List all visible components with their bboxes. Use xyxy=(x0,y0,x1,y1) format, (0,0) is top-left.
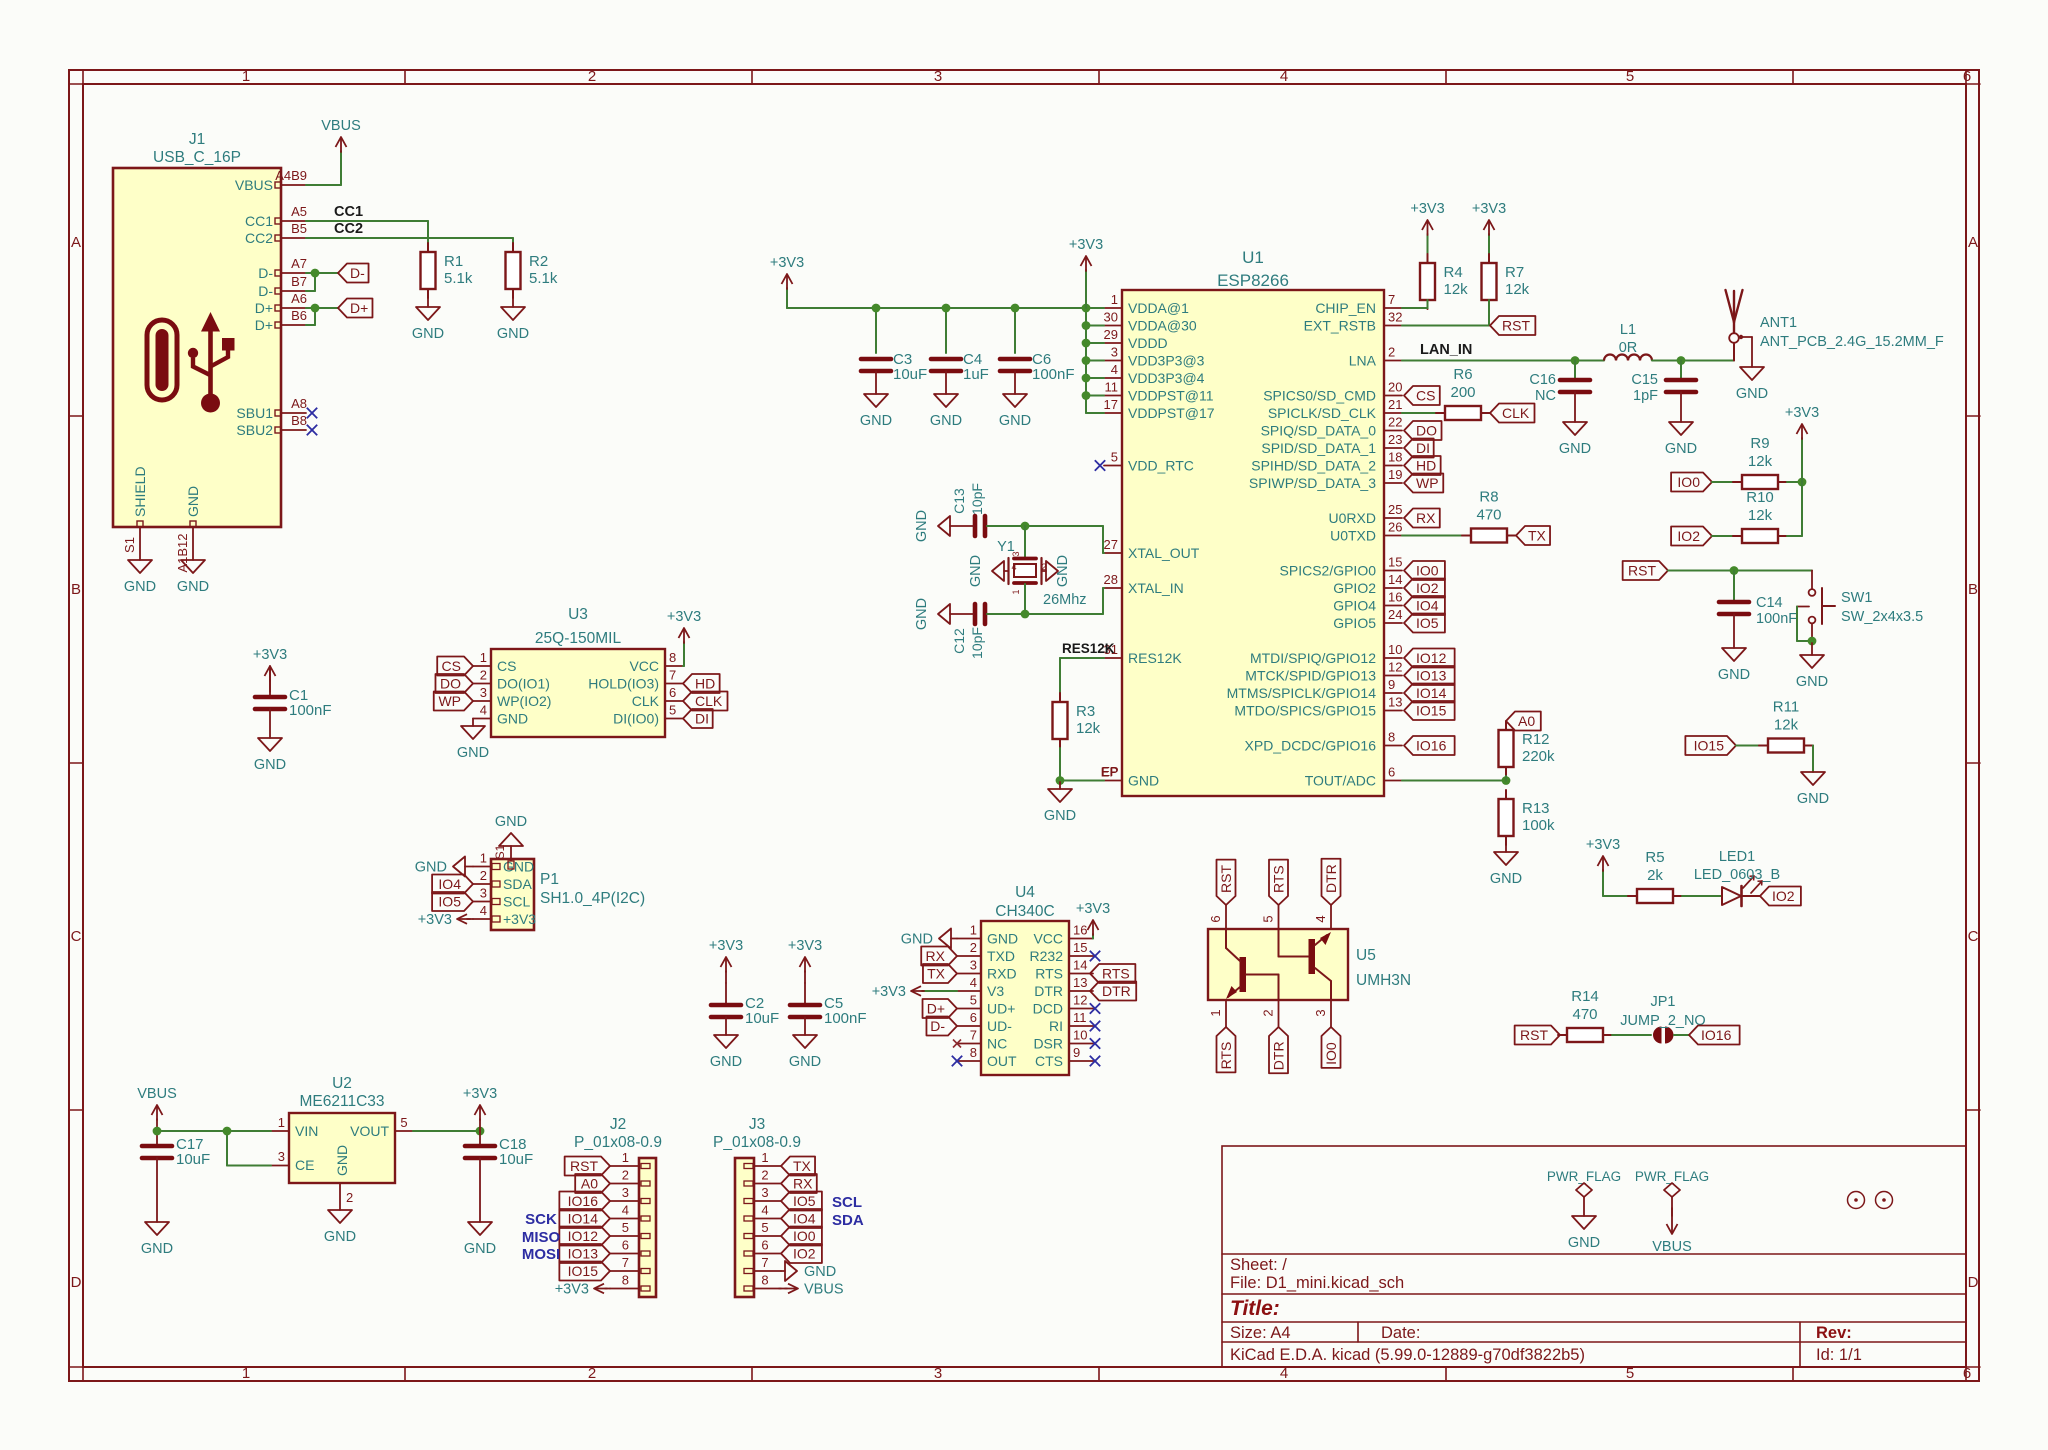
svg-text:Date:: Date: xyxy=(1381,1324,1420,1342)
svg-text:IO13: IO13 xyxy=(568,1246,599,1262)
svg-text:26: 26 xyxy=(1388,520,1402,535)
svg-text:7: 7 xyxy=(970,1028,977,1043)
svg-text:J1: J1 xyxy=(189,131,205,148)
svg-text:TX: TX xyxy=(793,1158,812,1174)
svg-text:NC: NC xyxy=(1535,388,1556,404)
svg-text:VCC: VCC xyxy=(1033,931,1063,947)
svg-text:KiCad E.D.A. kicad (5.99.0-12: KiCad E.D.A. kicad (5.99.0-12889-g70df38… xyxy=(1230,1346,1585,1364)
svg-text:A: A xyxy=(1968,234,1978,251)
svg-text:VOUT: VOUT xyxy=(350,1123,389,1139)
svg-text:VDD3P3@4: VDD3P3@4 xyxy=(1128,370,1205,386)
svg-text:5: 5 xyxy=(669,703,676,718)
svg-text:Title:: Title: xyxy=(1230,1297,1280,1320)
svg-text:1: 1 xyxy=(480,650,487,665)
svg-text:P_01x08-0.9: P_01x08-0.9 xyxy=(574,1134,662,1151)
svg-text:U0TXD: U0TXD xyxy=(1330,528,1376,544)
svg-text:D-: D- xyxy=(930,1018,945,1034)
svg-text:SW_2x4x3.5: SW_2x4x3.5 xyxy=(1841,609,1923,625)
svg-text:15: 15 xyxy=(1073,940,1087,955)
svg-text:12k: 12k xyxy=(1774,717,1799,734)
svg-text:3: 3 xyxy=(480,685,487,700)
svg-text:A: A xyxy=(71,234,81,251)
svg-text:IO2: IO2 xyxy=(1772,888,1795,904)
svg-text:B8: B8 xyxy=(291,413,307,428)
svg-text:CS: CS xyxy=(1416,388,1435,404)
svg-text:CS: CS xyxy=(497,658,516,674)
svg-text:SDA: SDA xyxy=(503,876,532,892)
svg-text:ESP8266: ESP8266 xyxy=(1217,271,1289,290)
svg-text:TX: TX xyxy=(927,966,946,982)
svg-text:J2: J2 xyxy=(610,1116,626,1133)
svg-text:U5: U5 xyxy=(1356,947,1376,964)
svg-text:C: C xyxy=(1968,928,1979,945)
svg-text:13: 13 xyxy=(1388,695,1402,710)
svg-text:16: 16 xyxy=(1073,923,1087,938)
svg-text:5: 5 xyxy=(400,1115,407,1130)
svg-text:SBU1: SBU1 xyxy=(236,405,273,421)
svg-text:GND: GND xyxy=(254,757,286,773)
svg-text:TOUT/ADC: TOUT/ADC xyxy=(1305,773,1376,789)
svg-text:SH1.0_4P(I2C): SH1.0_4P(I2C) xyxy=(540,890,645,907)
svg-text:GND: GND xyxy=(914,598,930,630)
svg-text:MTMS/SPICLK/GPIO14: MTMS/SPICLK/GPIO14 xyxy=(1227,685,1377,701)
svg-text:DO: DO xyxy=(440,676,461,692)
svg-text:GND: GND xyxy=(185,486,201,517)
svg-text:4: 4 xyxy=(1280,68,1288,85)
svg-text:12k: 12k xyxy=(1748,507,1773,524)
svg-text:4: 4 xyxy=(1011,562,1016,572)
svg-text:1: 1 xyxy=(242,68,250,85)
svg-text:MOSI: MOSI xyxy=(522,1246,560,1263)
svg-text:IO16: IO16 xyxy=(568,1193,599,1209)
svg-text:CLK: CLK xyxy=(632,693,660,709)
svg-text:GND: GND xyxy=(860,413,892,429)
svg-text:2: 2 xyxy=(1261,1009,1276,1016)
svg-text:6: 6 xyxy=(761,1238,768,1253)
svg-text:12k: 12k xyxy=(1076,720,1101,737)
svg-text:1pF: 1pF xyxy=(1633,388,1658,404)
svg-text:IO4: IO4 xyxy=(793,1211,816,1227)
svg-text:30: 30 xyxy=(1104,310,1118,325)
svg-text:VBUS: VBUS xyxy=(235,177,273,193)
svg-text:12k: 12k xyxy=(1748,453,1773,470)
svg-text:GPIO4: GPIO4 xyxy=(1333,598,1376,614)
svg-text:IO16: IO16 xyxy=(1701,1027,1732,1043)
svg-text:LED1: LED1 xyxy=(1719,849,1755,865)
svg-text:2: 2 xyxy=(588,68,596,85)
svg-text:EP: EP xyxy=(1101,764,1118,779)
svg-text:R2: R2 xyxy=(529,253,548,270)
svg-text:GND: GND xyxy=(1718,667,1750,683)
svg-text:12: 12 xyxy=(1388,660,1402,675)
svg-text:DO: DO xyxy=(1416,423,1437,439)
svg-text:17: 17 xyxy=(1104,397,1118,412)
svg-text:1: 1 xyxy=(622,1150,629,1165)
svg-text:3: 3 xyxy=(934,68,942,85)
svg-text:SCL: SCL xyxy=(832,1194,862,1211)
svg-text:U2: U2 xyxy=(332,1075,352,1092)
svg-text:GND: GND xyxy=(1736,386,1768,402)
svg-text:3: 3 xyxy=(970,958,977,973)
svg-text:USB_C_16P: USB_C_16P xyxy=(153,149,241,166)
svg-text:4: 4 xyxy=(480,703,487,718)
svg-text:VBUS: VBUS xyxy=(804,1282,844,1298)
svg-text:14: 14 xyxy=(1388,572,1402,587)
svg-text:RXD: RXD xyxy=(987,966,1017,982)
svg-text:R13: R13 xyxy=(1522,800,1550,817)
svg-text:8: 8 xyxy=(970,1045,977,1060)
svg-text:SPICS2/GPIO0: SPICS2/GPIO0 xyxy=(1280,563,1377,579)
svg-text:UD-: UD- xyxy=(987,1018,1012,1034)
svg-text:HD: HD xyxy=(1416,458,1436,474)
svg-text:NC: NC xyxy=(987,1036,1007,1052)
svg-text:3: 3 xyxy=(1011,551,1021,556)
svg-text:+3V3: +3V3 xyxy=(1410,201,1444,217)
svg-text:C13: C13 xyxy=(951,488,967,514)
svg-text:6: 6 xyxy=(1208,915,1223,922)
svg-text:5: 5 xyxy=(1111,450,1118,465)
svg-text:XTAL_IN: XTAL_IN xyxy=(1128,580,1184,596)
svg-text:R3: R3 xyxy=(1076,703,1095,720)
svg-text:VDDD: VDDD xyxy=(1128,335,1168,351)
svg-text:DTR: DTR xyxy=(1271,1041,1287,1070)
svg-text:CS: CS xyxy=(442,658,461,674)
svg-text:5: 5 xyxy=(970,993,977,1008)
svg-text:MTCK/SPID/GPIO13: MTCK/SPID/GPIO13 xyxy=(1245,668,1376,684)
svg-text:ME6211C33: ME6211C33 xyxy=(299,1093,384,1110)
svg-text:10uF: 10uF xyxy=(893,366,927,383)
svg-text:S1: S1 xyxy=(122,537,137,553)
svg-text:7: 7 xyxy=(761,1255,768,1270)
svg-text:Size: A4: Size: A4 xyxy=(1230,1324,1291,1342)
svg-text:10uF: 10uF xyxy=(499,1151,533,1168)
svg-text:RST: RST xyxy=(1628,563,1656,579)
svg-text:CH340C: CH340C xyxy=(995,903,1054,920)
svg-text:GND: GND xyxy=(1055,555,1071,587)
svg-text:200: 200 xyxy=(1450,384,1475,401)
svg-text:100nF: 100nF xyxy=(289,702,332,719)
svg-text:13: 13 xyxy=(1073,975,1087,990)
svg-text:7: 7 xyxy=(622,1255,629,1270)
svg-text:GND: GND xyxy=(1128,773,1159,789)
svg-text:U4: U4 xyxy=(1015,884,1035,901)
svg-text:VBUS: VBUS xyxy=(1652,1239,1692,1255)
svg-text:R11: R11 xyxy=(1773,699,1799,716)
svg-text:+3V3: +3V3 xyxy=(1472,201,1506,217)
svg-text:3: 3 xyxy=(761,1185,768,1200)
svg-text:R5: R5 xyxy=(1645,849,1664,866)
svg-text:A6: A6 xyxy=(291,291,307,306)
svg-text:2: 2 xyxy=(1388,345,1395,360)
svg-text:CC2: CC2 xyxy=(334,221,363,237)
svg-text:10: 10 xyxy=(1388,642,1402,657)
svg-text:IO5: IO5 xyxy=(1416,615,1439,631)
svg-text:3: 3 xyxy=(1111,345,1118,360)
svg-text:V3: V3 xyxy=(987,983,1004,999)
svg-text:Sheet: /: Sheet: / xyxy=(1230,1256,1287,1274)
svg-text:RTS: RTS xyxy=(1035,966,1063,982)
svg-text:+3V3: +3V3 xyxy=(667,609,701,625)
svg-text:R6: R6 xyxy=(1453,366,1472,383)
svg-text:6: 6 xyxy=(1963,68,1971,85)
svg-text:MTDO/SPICS/GPIO15: MTDO/SPICS/GPIO15 xyxy=(1234,703,1376,719)
svg-text:Id: 1/1: Id: 1/1 xyxy=(1816,1346,1862,1364)
svg-text:4: 4 xyxy=(970,975,977,990)
svg-text:D: D xyxy=(71,1274,82,1291)
svg-text:XTAL_OUT: XTAL_OUT xyxy=(1128,545,1200,561)
svg-text:Rev:: Rev: xyxy=(1816,1324,1852,1342)
svg-text:6: 6 xyxy=(970,1010,977,1025)
svg-text:11: 11 xyxy=(1073,1010,1087,1025)
svg-text:IO12: IO12 xyxy=(568,1228,599,1244)
svg-text:A0: A0 xyxy=(581,1176,598,1192)
svg-text:GND: GND xyxy=(124,579,156,595)
svg-text:1: 1 xyxy=(970,923,977,938)
svg-text:SPIHD/SD_DATA_2: SPIHD/SD_DATA_2 xyxy=(1251,458,1376,474)
svg-text:B6: B6 xyxy=(291,308,307,323)
svg-text:25: 25 xyxy=(1388,502,1402,517)
svg-text:GND: GND xyxy=(457,745,489,761)
svg-text:GND: GND xyxy=(804,1264,836,1280)
svg-text:3: 3 xyxy=(480,886,487,901)
svg-text:RST: RST xyxy=(1218,865,1234,893)
svg-text:DCD: DCD xyxy=(1033,1001,1063,1017)
svg-text:EXT_RSTB: EXT_RSTB xyxy=(1304,318,1376,334)
svg-text:RES12K: RES12K xyxy=(1062,641,1115,656)
svg-text:SPIWP/SD_DATA_3: SPIWP/SD_DATA_3 xyxy=(1249,475,1376,491)
svg-text:R232: R232 xyxy=(1030,948,1064,964)
svg-text:D-: D- xyxy=(258,283,273,299)
svg-text:VBUS: VBUS xyxy=(137,1086,177,1102)
svg-text:5: 5 xyxy=(622,1220,629,1235)
svg-text:VCC: VCC xyxy=(629,658,659,674)
svg-text:IO5: IO5 xyxy=(793,1193,816,1209)
svg-text:WP: WP xyxy=(438,693,461,709)
svg-text:RX: RX xyxy=(1416,510,1436,526)
svg-text:L1: L1 xyxy=(1620,322,1636,338)
svg-text:TX: TX xyxy=(1528,528,1547,544)
svg-text:GND: GND xyxy=(1665,441,1697,457)
svg-text:9: 9 xyxy=(1073,1045,1080,1060)
svg-text:IO14: IO14 xyxy=(568,1211,599,1227)
svg-text:D-: D- xyxy=(258,265,273,281)
svg-text:10uF: 10uF xyxy=(176,1151,210,1168)
svg-text:5.1k: 5.1k xyxy=(444,270,473,287)
svg-text:C: C xyxy=(71,928,82,945)
svg-text:GND: GND xyxy=(495,814,527,830)
svg-text:B5: B5 xyxy=(291,221,307,236)
svg-text:5: 5 xyxy=(1261,915,1276,922)
svg-text:0R: 0R xyxy=(1619,340,1638,356)
svg-text:GND: GND xyxy=(415,860,447,876)
svg-text:8: 8 xyxy=(669,650,676,665)
svg-text:+3V3: +3V3 xyxy=(1069,237,1103,253)
svg-text:GND: GND xyxy=(141,1241,173,1257)
svg-text:8: 8 xyxy=(761,1273,768,1288)
svg-text:RST: RST xyxy=(1502,318,1530,334)
svg-text:IO4: IO4 xyxy=(1416,598,1439,614)
svg-text:220k: 220k xyxy=(1522,748,1555,765)
svg-text:RST: RST xyxy=(1520,1027,1548,1043)
svg-text:CLK: CLK xyxy=(695,693,723,709)
svg-text:CC1: CC1 xyxy=(245,213,273,229)
svg-text:1: 1 xyxy=(480,851,487,866)
svg-text:SBU2: SBU2 xyxy=(236,422,273,438)
svg-text:7: 7 xyxy=(669,668,676,683)
svg-text:6: 6 xyxy=(1388,765,1395,780)
svg-text:CHIP_EN: CHIP_EN xyxy=(1315,300,1376,316)
svg-text:5: 5 xyxy=(1626,68,1634,85)
svg-text:16: 16 xyxy=(1388,590,1402,605)
svg-text:D+: D+ xyxy=(350,300,368,316)
svg-text:1: 1 xyxy=(1011,589,1021,594)
svg-text:ANT_PCB_2.4G_15.2MM_F: ANT_PCB_2.4G_15.2MM_F xyxy=(1760,334,1944,350)
svg-text:OUT: OUT xyxy=(987,1053,1017,1069)
svg-text:IO2: IO2 xyxy=(1677,528,1700,544)
svg-text:SPICLK/SD_CLK: SPICLK/SD_CLK xyxy=(1268,405,1377,421)
svg-text:RES12K: RES12K xyxy=(1128,650,1182,666)
svg-text:DTR: DTR xyxy=(1323,864,1339,893)
svg-text:2: 2 xyxy=(970,940,977,955)
svg-text:ANT1: ANT1 xyxy=(1760,315,1797,331)
svg-text:MISO: MISO xyxy=(522,1229,561,1246)
svg-text:C14: C14 xyxy=(1756,595,1783,611)
svg-text:12k: 12k xyxy=(1444,281,1469,298)
svg-text:R8: R8 xyxy=(1479,489,1498,506)
svg-text:+3V3: +3V3 xyxy=(788,938,822,954)
svg-text:+3V3: +3V3 xyxy=(253,647,287,663)
svg-text:RTS: RTS xyxy=(1218,1042,1234,1070)
svg-text:8: 8 xyxy=(1388,730,1395,745)
svg-text:2: 2 xyxy=(480,868,487,883)
svg-text:IO0: IO0 xyxy=(1677,474,1700,490)
svg-text:XPD_DCDC/GPIO16: XPD_DCDC/GPIO16 xyxy=(1245,738,1377,754)
svg-text:A5: A5 xyxy=(291,204,307,219)
svg-text:GND: GND xyxy=(1044,808,1076,824)
svg-text:3: 3 xyxy=(278,1149,285,1164)
svg-text:R10: R10 xyxy=(1746,489,1774,506)
svg-text:File: D1_mini.kicad_sch: File: D1_mini.kicad_sch xyxy=(1230,1274,1404,1292)
svg-text:+3V3: +3V3 xyxy=(1076,901,1110,917)
svg-text:DTR: DTR xyxy=(1102,983,1131,999)
svg-text:GND: GND xyxy=(968,555,984,587)
svg-text:A7: A7 xyxy=(291,256,307,271)
svg-text:WP: WP xyxy=(1416,475,1439,491)
svg-text:VDDPST@11: VDDPST@11 xyxy=(1128,388,1214,404)
svg-text:6: 6 xyxy=(669,685,676,700)
svg-text:CLK: CLK xyxy=(1502,405,1530,421)
svg-text:GND: GND xyxy=(1568,1235,1600,1251)
svg-text:DO(IO1): DO(IO1) xyxy=(497,676,550,692)
svg-text:GND: GND xyxy=(177,579,209,595)
svg-text:SPICS0/SD_CMD: SPICS0/SD_CMD xyxy=(1263,388,1376,404)
svg-text:B7: B7 xyxy=(291,274,307,289)
svg-text:DTR: DTR xyxy=(1034,983,1063,999)
svg-text:+3V3: +3V3 xyxy=(555,1282,589,1298)
svg-text:23: 23 xyxy=(1388,432,1402,447)
svg-text:U3: U3 xyxy=(568,606,588,623)
svg-text:29: 29 xyxy=(1104,327,1118,342)
svg-text:WP(IO2): WP(IO2) xyxy=(497,693,551,709)
svg-text:GND: GND xyxy=(497,711,528,727)
svg-text:SPIQ/SD_DATA_0: SPIQ/SD_DATA_0 xyxy=(1261,423,1377,439)
svg-text:2k: 2k xyxy=(1647,867,1663,884)
svg-text:32: 32 xyxy=(1388,310,1402,325)
svg-text:C15: C15 xyxy=(1631,372,1658,388)
svg-text:D-: D- xyxy=(350,265,365,281)
svg-text:IO0: IO0 xyxy=(1323,1042,1339,1065)
svg-text:GND: GND xyxy=(901,932,933,948)
svg-text:VBUS: VBUS xyxy=(321,118,361,134)
svg-text:RST: RST xyxy=(570,1158,598,1174)
svg-text:5: 5 xyxy=(761,1220,768,1235)
svg-text:CE: CE xyxy=(295,1157,314,1173)
svg-text:+3V3: +3V3 xyxy=(1586,837,1620,853)
svg-text:U1: U1 xyxy=(1242,248,1264,267)
svg-text:GND: GND xyxy=(334,1145,350,1176)
svg-text:7: 7 xyxy=(1388,292,1395,307)
svg-text:P_01x08-0.9: P_01x08-0.9 xyxy=(713,1134,801,1151)
svg-text:100k: 100k xyxy=(1522,817,1555,834)
svg-text:A8: A8 xyxy=(291,396,307,411)
svg-text:A0: A0 xyxy=(1518,713,1535,729)
svg-text:25Q-150MIL: 25Q-150MIL xyxy=(535,630,622,647)
svg-text:18: 18 xyxy=(1388,450,1402,465)
svg-text:GND: GND xyxy=(324,1229,356,1245)
svg-text:4: 4 xyxy=(622,1203,629,1218)
svg-text:C16: C16 xyxy=(1529,372,1556,388)
svg-text:LED_0603_B: LED_0603_B xyxy=(1694,867,1780,883)
svg-text:GND: GND xyxy=(464,1241,496,1257)
svg-text:1: 1 xyxy=(1111,292,1118,307)
svg-text:10uF: 10uF xyxy=(745,1010,779,1027)
svg-text:R4: R4 xyxy=(1444,264,1463,281)
svg-text:VDD3P3@3: VDD3P3@3 xyxy=(1128,353,1205,369)
svg-text:TXD: TXD xyxy=(987,948,1015,964)
svg-text:28: 28 xyxy=(1104,572,1118,587)
svg-text:B: B xyxy=(71,581,81,598)
svg-text:GND: GND xyxy=(710,1054,742,1070)
svg-text:SW1: SW1 xyxy=(1841,590,1872,606)
svg-text:1: 1 xyxy=(761,1150,768,1165)
svg-text:+3V3: +3V3 xyxy=(463,1086,497,1102)
svg-text:+3V3: +3V3 xyxy=(503,911,536,927)
svg-text:GPIO2: GPIO2 xyxy=(1333,580,1376,596)
svg-text:GND: GND xyxy=(789,1054,821,1070)
svg-text:4: 4 xyxy=(480,903,487,918)
svg-text:CC2: CC2 xyxy=(245,230,273,246)
svg-text:+3V3: +3V3 xyxy=(418,912,452,928)
svg-text:VDDA@30: VDDA@30 xyxy=(1128,318,1197,334)
svg-text:R14: R14 xyxy=(1571,988,1599,1005)
svg-text:22: 22 xyxy=(1388,415,1402,430)
svg-text:GND: GND xyxy=(999,413,1031,429)
svg-text:5.1k: 5.1k xyxy=(529,270,558,287)
svg-text:UD+: UD+ xyxy=(987,1001,1015,1017)
svg-text:DI(IO0): DI(IO0) xyxy=(613,711,659,727)
svg-text:100nF: 100nF xyxy=(824,1010,867,1027)
svg-text:IO0: IO0 xyxy=(1416,563,1439,579)
svg-text:D+: D+ xyxy=(255,300,273,316)
svg-text:GND: GND xyxy=(1796,674,1828,690)
svg-text:IO0: IO0 xyxy=(793,1228,816,1244)
svg-text:1: 1 xyxy=(1208,1009,1223,1016)
svg-text:CC1: CC1 xyxy=(334,204,363,220)
svg-text:P1: P1 xyxy=(540,871,559,888)
svg-text:+3V3: +3V3 xyxy=(1785,405,1819,421)
svg-text:1: 1 xyxy=(242,1365,250,1382)
svg-text:JP1: JP1 xyxy=(1651,994,1676,1010)
